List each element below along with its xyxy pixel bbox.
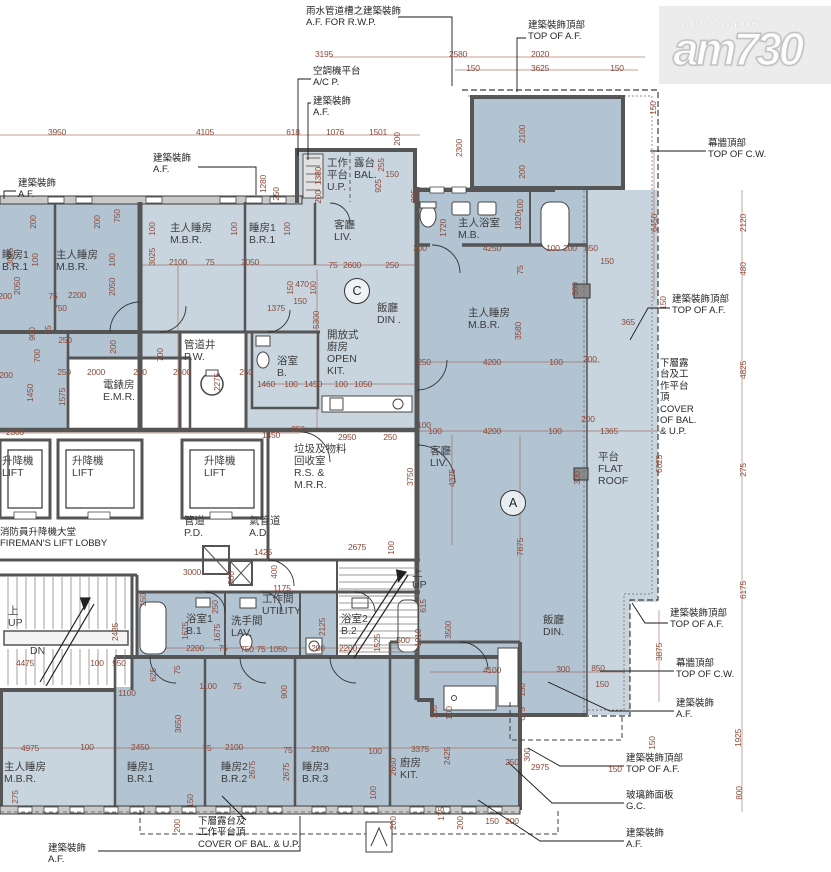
dimension-label: 75 <box>515 265 525 274</box>
dimension-label: 2450 <box>131 742 149 752</box>
dimension-label: 1010 <box>413 629 423 647</box>
dimension-label: 75 <box>256 644 265 654</box>
dimension-label: 2050 <box>107 278 117 296</box>
room-label: 平台 FLAT ROOF <box>598 452 628 488</box>
callout-label: 建築裝飾頂部 TOP OF A.F. <box>626 753 683 776</box>
dimension-label: 200 <box>108 340 118 354</box>
dimension-label: 75 <box>205 257 214 267</box>
room-label: 升降機 LIFT <box>72 456 104 480</box>
dimension-label: 1100 <box>199 681 216 691</box>
dimension-label: 300 <box>226 571 236 585</box>
dimension-label: 2950 <box>338 432 356 442</box>
unit-marker-A: A <box>500 490 526 516</box>
dimension-label: 200 <box>28 215 38 229</box>
dimension-label: 100 <box>80 742 94 752</box>
dimension-label: 1100 <box>118 688 135 698</box>
room-label: 開放式 廚房 OPEN KIT. <box>327 330 359 378</box>
dimension-label: 1575 <box>57 388 67 406</box>
dimension-label: 3000 <box>183 567 201 577</box>
dimension-label: 2580 <box>449 49 467 59</box>
dimension-label: 4200 <box>483 426 501 436</box>
room-label: 工作 平台 U.P. <box>327 158 348 194</box>
dimension-label: 100 <box>368 746 382 756</box>
watermark-brand: am730 <box>673 28 801 72</box>
dimension-label: 1050 <box>354 379 372 389</box>
dimension-label: 150 <box>466 63 480 73</box>
dimension-label: 1501 <box>369 127 387 137</box>
dimension-label: 150 <box>385 169 399 179</box>
dimension-label: 100 <box>368 786 378 800</box>
dimension-label: 2675 <box>348 542 366 552</box>
room-label: 睡房1 B.R.1 <box>249 223 276 247</box>
am730-watermark: my place my paper am730 <box>659 6 831 84</box>
room-label: 睡房1 B.R.1 <box>127 762 154 786</box>
dimension-label: 500 <box>396 635 410 645</box>
dimension-label: 200 <box>311 643 325 653</box>
room-label: 垃圾及物料 回收室 R.S. & M.R.R. <box>294 444 347 492</box>
dimension-label: 2675 <box>281 763 291 781</box>
dimension-label: 275 <box>10 790 20 804</box>
dimension-label: 75 <box>218 643 227 653</box>
room-label: 工作間 UTILITY <box>262 594 301 618</box>
callout-label: 消防員升降機大堂 FIREMAN'S LIFT LOBBY <box>0 527 107 550</box>
dimension-label: 2650 <box>388 758 398 776</box>
dimension-label: 2020 <box>531 49 549 59</box>
room-label: 廚房 KIT. <box>400 758 421 782</box>
room-label: 露台 BAL. <box>354 158 377 182</box>
dimension-label: 850 <box>584 243 598 253</box>
dimension-label: 4825 <box>738 361 748 379</box>
room-label: 主人睡房 M.B.R. <box>170 223 212 247</box>
dimension-label: 700 <box>155 348 165 362</box>
dimension-label: 905 <box>409 189 419 203</box>
room-label: 上 UP <box>412 568 427 592</box>
dimension-label: 75 <box>232 681 241 691</box>
callout-label: 幕牆頂部 TOP OF C.W. <box>708 138 766 161</box>
callout-label: 建築裝飾 A.F. <box>18 178 56 201</box>
dimension-label: 750 <box>112 209 122 223</box>
dimension-label: 200 <box>313 190 323 204</box>
dimension-label: 150 <box>485 816 499 826</box>
dimension-label: 700 <box>32 349 42 363</box>
dimension-label: 150 <box>647 736 657 750</box>
dimension-label: 100 <box>386 541 396 555</box>
dimension-label: 2100 <box>311 744 329 754</box>
dimension-label: 1720 <box>438 219 448 237</box>
dimension-label: 3950 <box>48 127 66 137</box>
dimension-label: 150 <box>517 683 527 697</box>
dimension-label: 2050 <box>241 257 259 267</box>
dimension-label: 2100 <box>517 125 527 143</box>
dimension-label: 100 <box>548 426 562 436</box>
dimension-label: 250 <box>291 424 305 434</box>
room-label: 飯廳 DIN . <box>377 303 401 327</box>
dimension-label: 618 <box>286 127 300 137</box>
dimension-label: 250 <box>133 367 147 377</box>
dimension-label: 1450 <box>25 384 35 402</box>
dimension-label: 75 <box>283 745 292 755</box>
dimension-label: 4250 <box>483 243 501 253</box>
dimension-label: 1050 <box>269 644 287 654</box>
callout-label: 建築裝飾頂部 TOP OF A.F. <box>672 294 729 317</box>
dimension-label: 1450 <box>304 379 322 389</box>
dimension-label: 150 <box>185 794 195 808</box>
dimension-label: 2100 <box>169 257 187 267</box>
dimension-label: 6450 <box>649 214 659 232</box>
dimension-label: 1450 <box>262 430 280 440</box>
room-label: 飯廳 DIN. <box>543 615 564 639</box>
dimension-label: 100 <box>147 222 157 236</box>
dimension-label: 2425 <box>442 747 452 765</box>
dimension-label: 250 <box>57 367 71 377</box>
dimension-label: 150 <box>658 296 668 310</box>
dimension-label: 200 <box>0 291 12 301</box>
dimension-label: 250 <box>385 260 399 270</box>
dimension-label: 175 <box>436 807 446 821</box>
dimension-label: 75 <box>43 325 53 334</box>
dimension-label: 200 <box>92 215 102 229</box>
floor-plan-page: 3195258020201503625150395041056181076150… <box>0 0 831 872</box>
dimension-label: 3650 <box>173 715 183 733</box>
dimension-label: 850 <box>591 663 605 673</box>
dimension-label: 100 <box>334 379 348 389</box>
dimension-label: 200 <box>505 816 519 826</box>
callout-label: 建築裝飾 A.F. <box>48 843 86 866</box>
dimension-label: 200 <box>583 354 597 364</box>
room-label: 電錶房 E.M.R. <box>103 380 135 404</box>
room-label: 管道井 P.W. <box>184 340 216 364</box>
dimension-label: 750 <box>53 303 67 313</box>
callout-label: 建築裝飾 A.F. <box>626 828 664 851</box>
dimension-label: 100 <box>444 706 454 720</box>
dimension-label: 800 <box>734 786 744 800</box>
dimension-label: 4100 <box>483 665 501 675</box>
room-label: 浴室1 B.1 <box>186 614 213 638</box>
dimension-label: 4475 <box>16 658 34 668</box>
room-label: 浴室 B. <box>277 356 298 380</box>
dimension-label: 200 <box>455 816 465 830</box>
dimension-label: 100 <box>417 420 431 430</box>
dimension-label: 3875 <box>654 643 664 661</box>
room-label: 升降機 LIFT <box>2 456 34 480</box>
dimension-label: 1076 <box>326 127 344 137</box>
dimension-label: 300 <box>522 748 532 762</box>
dimension-label: 150 <box>293 296 307 306</box>
dimension-label: 100 <box>308 281 318 295</box>
unit-marker-C: C <box>344 278 370 304</box>
dimension-label: 100 <box>282 222 292 236</box>
callout-label: 雨水管道槽之建築裝飾 A.F. FOR R.W.P. <box>306 6 401 29</box>
dimension-label: 150 <box>138 593 148 607</box>
dimension-label: 200 <box>172 819 182 833</box>
dimension-label: 2300 <box>6 427 24 437</box>
dimension-label: 1175 <box>273 583 290 593</box>
dimension-label: 3625 <box>531 63 549 73</box>
dimension-label: 100 <box>284 379 298 389</box>
dimension-label: 6025 <box>654 455 664 473</box>
dimension-label: 150 <box>595 679 609 689</box>
callout-label: 建築裝飾 A.F. <box>153 153 191 176</box>
room-label: 客廳 LIV. <box>334 220 355 244</box>
dimension-label: 150 <box>608 764 622 774</box>
dimension-label: 750 <box>240 644 254 654</box>
dimension-label: 2275 <box>212 373 222 391</box>
dimension-label: 2300 <box>454 139 464 157</box>
dimension-label: 2100 <box>225 742 243 752</box>
room-label: 升降機 LIFT <box>204 456 236 480</box>
dimension-label: 100 <box>30 253 40 267</box>
dimension-label: 3750 <box>405 468 415 486</box>
dimension-label: 75 <box>172 665 182 674</box>
dimension-label: 250 <box>417 357 431 367</box>
room-label: DN <box>30 646 45 658</box>
room-label: 浴室2 B.2 <box>341 614 368 638</box>
dimension-label: 275 <box>738 463 748 477</box>
dimension-label: 100 <box>546 243 560 253</box>
dimension-label: 675 <box>517 707 527 721</box>
room-label: 主人睡房 M.B.R. <box>468 308 510 332</box>
callout-label: 空調機平台 A/C P. <box>313 66 361 89</box>
dimension-label: 1460 <box>257 379 275 389</box>
dimension-label: 250 <box>58 335 72 345</box>
callout-label: 下層露台及 工作平台頂 COVER OF BAL. & U.P. <box>198 816 300 850</box>
dimension-label: 300 <box>556 664 570 674</box>
callout-label: 建築裝飾頂部 TOP OF A.F. <box>528 20 585 43</box>
room-label: 客廳 LIV. <box>430 446 451 470</box>
callout-label: 下層露 台及工 作平台 頂 COVER OF BAL. & U.P. <box>660 358 696 438</box>
dimension-label: 400 <box>269 565 279 579</box>
callout-label: 建築裝飾 A.F. <box>313 96 351 119</box>
callout-label: 建築裝飾 A.F. <box>676 698 714 721</box>
dimension-label: 250 <box>210 600 220 614</box>
dimension-label: 150 <box>648 101 658 115</box>
dimension-label: 200 <box>392 132 402 146</box>
dimension-label: 100 <box>90 658 104 668</box>
dimension-label: 200 <box>517 165 527 179</box>
dimension-label: 1525 <box>372 634 382 652</box>
dimension-label: 615 <box>418 599 428 613</box>
dimension-label: 4975 <box>21 743 39 753</box>
dimension-label: 75 <box>328 260 337 270</box>
dimension-label: 900 <box>27 327 37 341</box>
dimension-label: 625 <box>148 668 158 682</box>
dimension-label: 300 <box>570 282 580 296</box>
dimension-label: 250 <box>239 367 253 377</box>
dimension-label: 1380 <box>313 167 323 185</box>
dimension-label: 3375 <box>411 744 429 754</box>
dimension-label: 200 <box>413 243 427 253</box>
dimension-label: 200 <box>563 243 577 253</box>
room-label: 睡房3 B.R.3 <box>302 762 329 786</box>
callout-label: 玻璃飾面板 G.C. <box>626 790 674 813</box>
dimension-label: 100 <box>429 705 439 719</box>
dimension-label: 100 <box>229 222 239 236</box>
dimension-label: 150 <box>285 281 295 295</box>
dimension-label: 7875 <box>515 538 525 556</box>
dimension-label: 1375 <box>267 303 285 313</box>
dimension-label: 2675 <box>247 761 257 779</box>
dimension-label: 3500 <box>443 621 453 639</box>
dimension-label: 2125 <box>317 618 327 636</box>
dimension-label: 100 <box>515 199 525 213</box>
room-label: 洗手間 LAV. <box>231 616 263 640</box>
dimension-label: 900 <box>279 685 289 699</box>
dimension-label: 200 <box>388 816 398 830</box>
dimension-label: 150 <box>610 63 624 73</box>
dimension-label: 480 <box>738 262 748 276</box>
dimension-label: 6175 <box>738 581 748 599</box>
dimension-label: 250 <box>271 187 281 201</box>
dimension-label: 2600 <box>343 260 361 270</box>
room-label: 睡房1 B.R.1 <box>2 250 29 274</box>
dimension-label: 300 <box>572 471 582 485</box>
dimension-label: 3195 <box>315 49 333 59</box>
dimension-label: 150 <box>600 256 614 266</box>
dimension-label: 100 <box>107 253 117 267</box>
dimension-label: 2200 <box>68 290 86 300</box>
dimension-label: 470 <box>295 279 309 289</box>
dimension-label: 75 <box>202 743 211 753</box>
room-label: 氣管道 A.D. <box>249 516 281 540</box>
dimension-label: 1365 <box>600 426 618 436</box>
room-label: 上 UP <box>8 606 23 630</box>
dimension-label: 1820 <box>513 212 523 230</box>
dimension-label: 365 <box>621 317 635 327</box>
dimension-label: 1425 <box>254 547 272 557</box>
room-label: 主人浴室 M.B. <box>458 218 500 242</box>
dimension-label: 100 <box>549 357 563 367</box>
dimension-label: 200 <box>581 414 595 424</box>
dimension-label: 2200 <box>339 643 357 653</box>
dimension-label: 3580 <box>513 322 523 340</box>
dimension-label: 950 <box>112 658 126 668</box>
callout-label: 幕牆頂部 TOP OF C.W. <box>676 658 734 681</box>
dimension-label: 4105 <box>196 127 214 137</box>
dimension-label: 250 <box>505 757 519 767</box>
dimension-label: 2500 <box>173 367 191 377</box>
dimension-label: 2120 <box>738 214 748 232</box>
dimension-label: 2000 <box>87 367 105 377</box>
dimension-label: 1675 <box>212 624 222 642</box>
dimension-label: 3025 <box>147 248 157 266</box>
room-label: 管道 P.D. <box>184 516 205 540</box>
dimension-label: 1280 <box>258 175 268 193</box>
dimension-label: 75 <box>48 291 57 301</box>
dimension-label: 1925 <box>733 729 743 747</box>
dimension-label: 2425 <box>110 623 120 641</box>
dimension-label: 4200 <box>483 357 501 367</box>
dimension-label: 2975 <box>531 762 549 772</box>
labels-layer: 3195258020201503625150395041056181076150… <box>0 0 831 872</box>
dimension-label: 200 <box>0 370 13 380</box>
dimension-label: 2200 <box>186 643 204 653</box>
dimension-label: 2050 <box>12 277 22 295</box>
callout-label: 建築裝飾頂部 TOP OF A.F. <box>670 608 727 631</box>
dimension-label: 4375 <box>447 469 457 487</box>
room-label: 主人睡房 M.B.R. <box>56 250 98 274</box>
room-label: 睡房2 B.R.2 <box>221 762 248 786</box>
room-label: 主人睡房 M.B.R. <box>4 762 46 786</box>
dimension-label: 5300 <box>311 311 321 329</box>
dimension-label: 250 <box>383 432 397 442</box>
